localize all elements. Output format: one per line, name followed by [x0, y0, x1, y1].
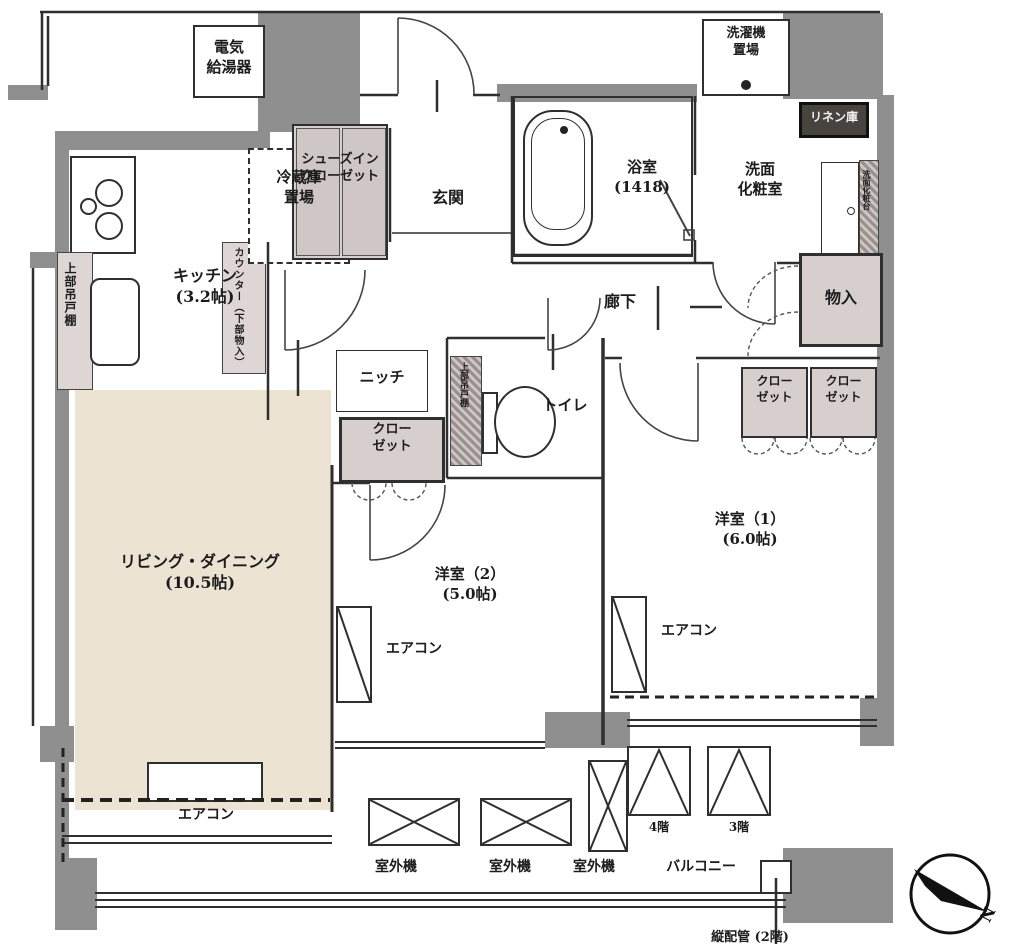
kitchen-label: キッチン (3.2帖): [140, 266, 270, 308]
door-arc-bedroom2: [370, 485, 445, 560]
shoes-closet-label: シューズイン クローゼット: [288, 152, 392, 186]
bedroom2-label: 洋室（2） (5.0帖): [398, 565, 542, 604]
balcony-rail-lines: [95, 893, 786, 907]
plan-linework: N: [0, 0, 1024, 947]
genkan-label: 玄関: [418, 188, 478, 209]
hatch-triangle: [630, 750, 688, 814]
monoire-fold-door-dashed: [748, 266, 798, 356]
aircon-living-label: エアコン: [160, 806, 252, 824]
counter-label: カウンター（下部物入）: [232, 247, 242, 368]
pipe-note-label: 縦配管 (2階): [680, 930, 820, 947]
outdoor-unit-x: [370, 800, 458, 844]
hatch-4f-label: 4階: [637, 820, 681, 836]
aircon-bedroom1-label: エアコン: [643, 622, 735, 640]
wall-tick: [298, 80, 722, 396]
hallway-label: 廊下: [586, 292, 654, 313]
window-line: [335, 742, 545, 748]
door-arc-washroom: [713, 262, 775, 324]
linen-label: リネン庫: [799, 110, 869, 126]
hatch-triangle: [710, 750, 768, 814]
outdoor-unit-label: 室外機: [356, 858, 436, 876]
outdoor-unit-x: [590, 762, 626, 850]
closet-hanger-arc: [352, 483, 426, 500]
hatch-3f-label: 3階: [717, 820, 761, 836]
closet-bedroom1a-label: クロー ゼット: [741, 374, 808, 405]
aircon-bedroom2-label: エアコン: [368, 640, 460, 658]
door-arc-hall-living: [285, 270, 365, 350]
water-heater-label: 電気 給湯器: [193, 38, 265, 77]
aircon-diagonal: [338, 608, 370, 701]
niche-label: ニッチ: [336, 368, 428, 388]
washer-label: 洗濯機 置場: [702, 26, 790, 60]
window-line: [627, 720, 877, 726]
toilet-label: トイレ: [528, 396, 602, 416]
floor-plan: N 電気 給湯器 キッチン (3.2帖) 上部吊戸棚 カウンター（下部物入） 冷…: [0, 0, 1024, 947]
compass-icon: N: [911, 855, 999, 933]
outdoor-unit-label: 室外機: [470, 858, 550, 876]
monoire-label: 物入: [799, 288, 883, 309]
outdoor-unit-x: [482, 800, 570, 844]
toilet-upper-cabinet-label: 上部吊戸棚: [458, 362, 467, 407]
aircon-diagonal: [613, 598, 645, 691]
kitchen-upper-cabinet-label: 上部吊戸棚: [64, 262, 76, 327]
washroom-label: 洗面 化粧室: [716, 160, 804, 199]
bedroom1-label: 洋室（1） (6.0帖): [678, 510, 822, 549]
bath-label: 浴室 (1418): [598, 158, 686, 197]
exterior-left-lines: [33, 12, 48, 726]
balcony-label: バルコニー: [646, 858, 756, 876]
closet-hanger-arc: [742, 438, 875, 454]
living-label: リビング・ダイニング (10.5帖): [92, 552, 308, 594]
vanity-label: 洗面化粧台: [863, 170, 871, 210]
door-arc-bedroom1: [620, 363, 698, 441]
closet-bedroom1b-label: クロー ゼット: [810, 374, 877, 405]
window-line: [62, 836, 332, 843]
outdoor-unit-label: 室外機: [554, 858, 634, 876]
closet-bedroom2-label: クロー ゼット: [339, 422, 445, 456]
